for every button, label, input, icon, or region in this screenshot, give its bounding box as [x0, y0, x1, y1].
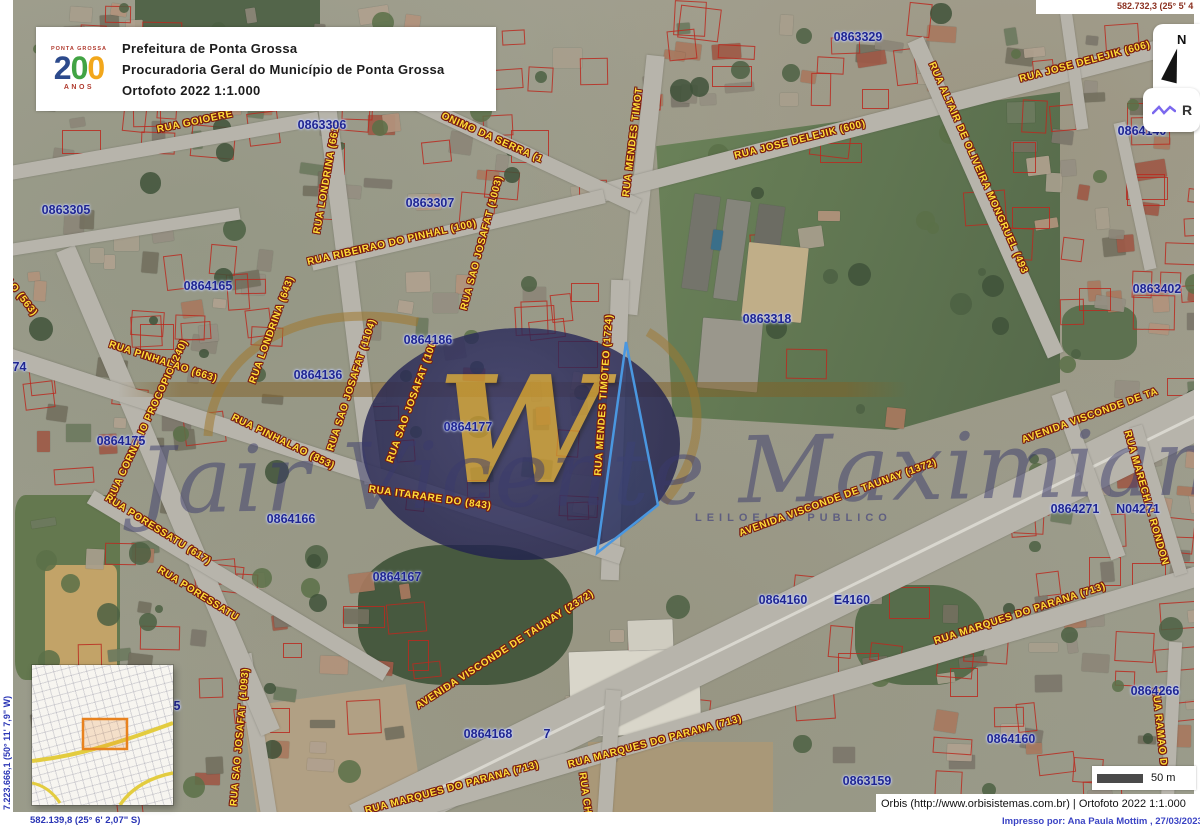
tree [856, 404, 865, 413]
parcel-outline [199, 678, 223, 699]
bld [70, 116, 87, 127]
wave-icon [1152, 103, 1176, 117]
parcel-outline [550, 293, 574, 323]
bld [433, 293, 457, 313]
bld [780, 93, 798, 106]
parcel-outline [811, 73, 832, 107]
bld [310, 720, 336, 729]
parcel-number-label: 0863402 [1133, 282, 1182, 296]
inset-roads [32, 665, 173, 805]
tree [1093, 170, 1106, 183]
bld [257, 249, 274, 272]
parcel-outline [515, 305, 556, 336]
title-line-2: Procuradoria Geral do Município de Ponta… [122, 59, 445, 80]
parcel-outline [556, 429, 580, 457]
parcel-number-label: 0864166 [267, 512, 316, 526]
bld [114, 418, 126, 428]
parcel-outline [1016, 702, 1038, 733]
parcel-number-label: 0864160 [759, 593, 808, 607]
bld [536, 406, 551, 424]
parcel-number-label: 5 [174, 699, 181, 713]
coordinate-top-right: 582.732,3 (25° 5' 4 [1117, 1, 1199, 11]
tree [183, 776, 205, 798]
tree [216, 143, 234, 161]
parcel-outline [386, 601, 427, 634]
inset-extent-rectangle [83, 719, 127, 749]
bld [927, 25, 957, 43]
parcel-outline [54, 467, 95, 486]
bld [943, 605, 958, 623]
bld [553, 48, 583, 68]
parcel-outline [862, 89, 889, 110]
scale-label: 50 m [1151, 772, 1175, 784]
tree [992, 317, 1010, 335]
tree [823, 269, 838, 284]
layers-label: R [1182, 102, 1192, 118]
tree [751, 187, 763, 199]
bld [364, 178, 392, 189]
parcel-outline [1012, 207, 1050, 229]
bld [857, 50, 888, 68]
parcel-outline [502, 30, 526, 46]
parcel-outline [130, 309, 164, 336]
bld [1029, 643, 1058, 653]
parcel-outline [1133, 295, 1176, 331]
parcel-number-label: 0864186 [404, 333, 453, 347]
bld [531, 381, 542, 401]
bld [69, 6, 92, 22]
parcel-number-label: 0864160 [987, 732, 1036, 746]
bld [406, 272, 431, 293]
layers-toggle[interactable]: R [1143, 88, 1200, 132]
bld [1004, 27, 1019, 46]
bld [1024, 47, 1046, 58]
tree [149, 316, 158, 325]
map-title: Prefeitura de Ponta Grossa Procuradoria … [122, 38, 445, 101]
tree [36, 550, 57, 571]
north-arrow-icon [1161, 47, 1185, 84]
parcel-outline [493, 68, 523, 90]
parcel-outline [580, 58, 608, 86]
tree [930, 3, 951, 24]
parcel-outline [1013, 142, 1036, 173]
parcel-number-label: 0864168 [464, 727, 513, 741]
tree [950, 293, 971, 314]
parcel-number-label: N04271 [1116, 502, 1160, 516]
bld [310, 741, 326, 753]
parcel-outline [933, 736, 973, 755]
parcel-outline [235, 279, 266, 294]
bld [1187, 313, 1194, 330]
bld [779, 14, 793, 35]
tree [309, 594, 327, 612]
parcel-outline [950, 668, 977, 698]
parcel-outline [677, 5, 722, 43]
printed-by: Impresso por: Ana Paula Mottim , 27/03/2… [1002, 816, 1200, 827]
tree [782, 64, 800, 82]
parcel-number-label: 0864177 [444, 420, 493, 434]
bld [1077, 184, 1090, 200]
bld [1060, 159, 1076, 176]
bld [1081, 654, 1109, 674]
tree [252, 568, 272, 588]
tree [97, 603, 120, 626]
tree [982, 275, 1004, 297]
tree [504, 167, 520, 183]
bld [1086, 36, 1099, 46]
parcel-outline [421, 140, 452, 165]
tree [927, 222, 939, 234]
parcel-outline [1114, 631, 1155, 663]
tree [264, 683, 275, 694]
parcel-number-label: 0863305 [42, 203, 91, 217]
parcel-number-label: 0863306 [298, 118, 347, 132]
tree [521, 276, 537, 292]
bld [933, 709, 958, 734]
tree [464, 330, 478, 344]
logo-anos: ANOS [36, 84, 122, 91]
parcel-number-label: 0864167 [373, 570, 422, 584]
scale-bar: 50 m [1092, 766, 1196, 790]
bld [1109, 230, 1125, 239]
bld [384, 726, 404, 740]
parcel-outline [23, 381, 56, 411]
bld [1177, 486, 1194, 497]
parcel-outline [571, 283, 600, 302]
parcel-outline [558, 341, 598, 368]
tree [1059, 356, 1076, 373]
coordinate-left-vertical: 7.223.666,1 (50° 11' 7,9" W) [2, 696, 12, 810]
parcel-outline [1021, 99, 1048, 133]
coordinate-bottom-left: 582.139,8 (25° 6' 2,07" S) [30, 815, 140, 826]
bld [141, 252, 159, 275]
parcel-number-label: 0863318 [743, 312, 792, 326]
parcel-number-label: 0863329 [834, 30, 883, 44]
title-box: PONTA GROSSA 200 ANOS Prefeitura de Pont… [36, 27, 496, 111]
map-canvas[interactable]: RUA GOIOERERUA LONDRINA (661)RUA RIBEIRA… [0, 0, 1200, 832]
tree [793, 735, 811, 753]
parcel-outline [283, 643, 302, 659]
parcel-outline [1060, 237, 1084, 262]
parcel-outline [558, 495, 598, 518]
bld [37, 431, 50, 452]
title-line-1: Prefeitura de Ponta Grossa [122, 38, 445, 59]
bld [213, 299, 226, 309]
parcel-outline [1089, 557, 1121, 586]
tree [670, 79, 693, 102]
tree [400, 370, 412, 382]
parcel-number-label: 0864266 [1131, 684, 1180, 698]
bld [1185, 450, 1194, 468]
tree [140, 172, 161, 193]
bld [261, 394, 283, 405]
bld [34, 281, 47, 301]
parcel-number-label: 0863307 [406, 196, 455, 210]
bld [90, 248, 105, 263]
bld [1095, 207, 1110, 229]
parcel-number-label: 0864165 [184, 279, 233, 293]
parcel-outline [718, 44, 755, 60]
attribution: Orbis (http://www.orbisistemas.com.br) |… [876, 794, 1200, 814]
logo-200: 200 [36, 52, 122, 84]
tree [731, 61, 750, 80]
parcel-outline [1164, 242, 1194, 266]
tree [372, 120, 388, 136]
bld [833, 747, 855, 763]
parcel-number-label: 7 [544, 727, 551, 741]
parcel-outline [467, 479, 490, 498]
tree [1112, 680, 1124, 692]
bld [348, 572, 376, 594]
parcel-outline [1037, 751, 1077, 776]
tree [410, 426, 422, 438]
parcel-outline [412, 661, 441, 680]
title-line-3: Ortofoto 2022 1:1.000 [122, 80, 445, 101]
parcel-outline [828, 625, 854, 659]
scale-bar-segment [1097, 774, 1143, 783]
tree [265, 460, 289, 484]
bld [1045, 173, 1062, 193]
parcel-number-label: 0864175 [97, 434, 146, 448]
bld [104, 255, 114, 269]
tree [61, 574, 80, 593]
bld [1035, 675, 1062, 693]
bld [85, 549, 104, 569]
parcel-number-label: E4160 [834, 593, 870, 607]
tree [155, 605, 163, 613]
bld [610, 630, 624, 642]
tree [199, 349, 209, 359]
parcel-outline [1059, 299, 1084, 326]
bld [307, 758, 335, 772]
bld [885, 407, 906, 429]
parcel-outline [1035, 571, 1061, 597]
tree [574, 385, 590, 401]
parcel-outline [889, 587, 930, 618]
parcel-number-label: 0864271 [1051, 502, 1100, 516]
parcel-outline [346, 699, 381, 735]
bld [818, 211, 840, 222]
parcel-outline [786, 348, 828, 378]
structure [627, 619, 673, 651]
ponta-grossa-200-logo: PONTA GROSSA 200 ANOS [36, 47, 122, 92]
tree [1159, 617, 1183, 641]
bld [206, 757, 224, 775]
tree [796, 28, 812, 44]
bld [372, 383, 387, 404]
tree [129, 542, 151, 564]
overview-inset-map[interactable] [32, 665, 173, 805]
bld [190, 629, 207, 647]
bld [397, 300, 414, 314]
structure [697, 318, 763, 393]
bld [521, 458, 553, 480]
bld [303, 186, 318, 196]
bld [273, 687, 297, 703]
parcel-number-label: 0863159 [843, 774, 892, 788]
bld [319, 656, 348, 675]
parcel-number-label: 0864136 [294, 368, 343, 382]
parcel-outline [906, 2, 932, 38]
tree [666, 595, 690, 619]
tree [29, 317, 53, 341]
tree [690, 77, 710, 97]
parcel-outline [343, 606, 385, 627]
bld [797, 225, 824, 249]
parcel-outline [1183, 217, 1194, 237]
bld [28, 272, 41, 282]
tree [470, 361, 483, 374]
bld [66, 424, 91, 442]
structure [741, 242, 809, 323]
north-label: N [1177, 32, 1186, 47]
tree [1029, 541, 1041, 553]
